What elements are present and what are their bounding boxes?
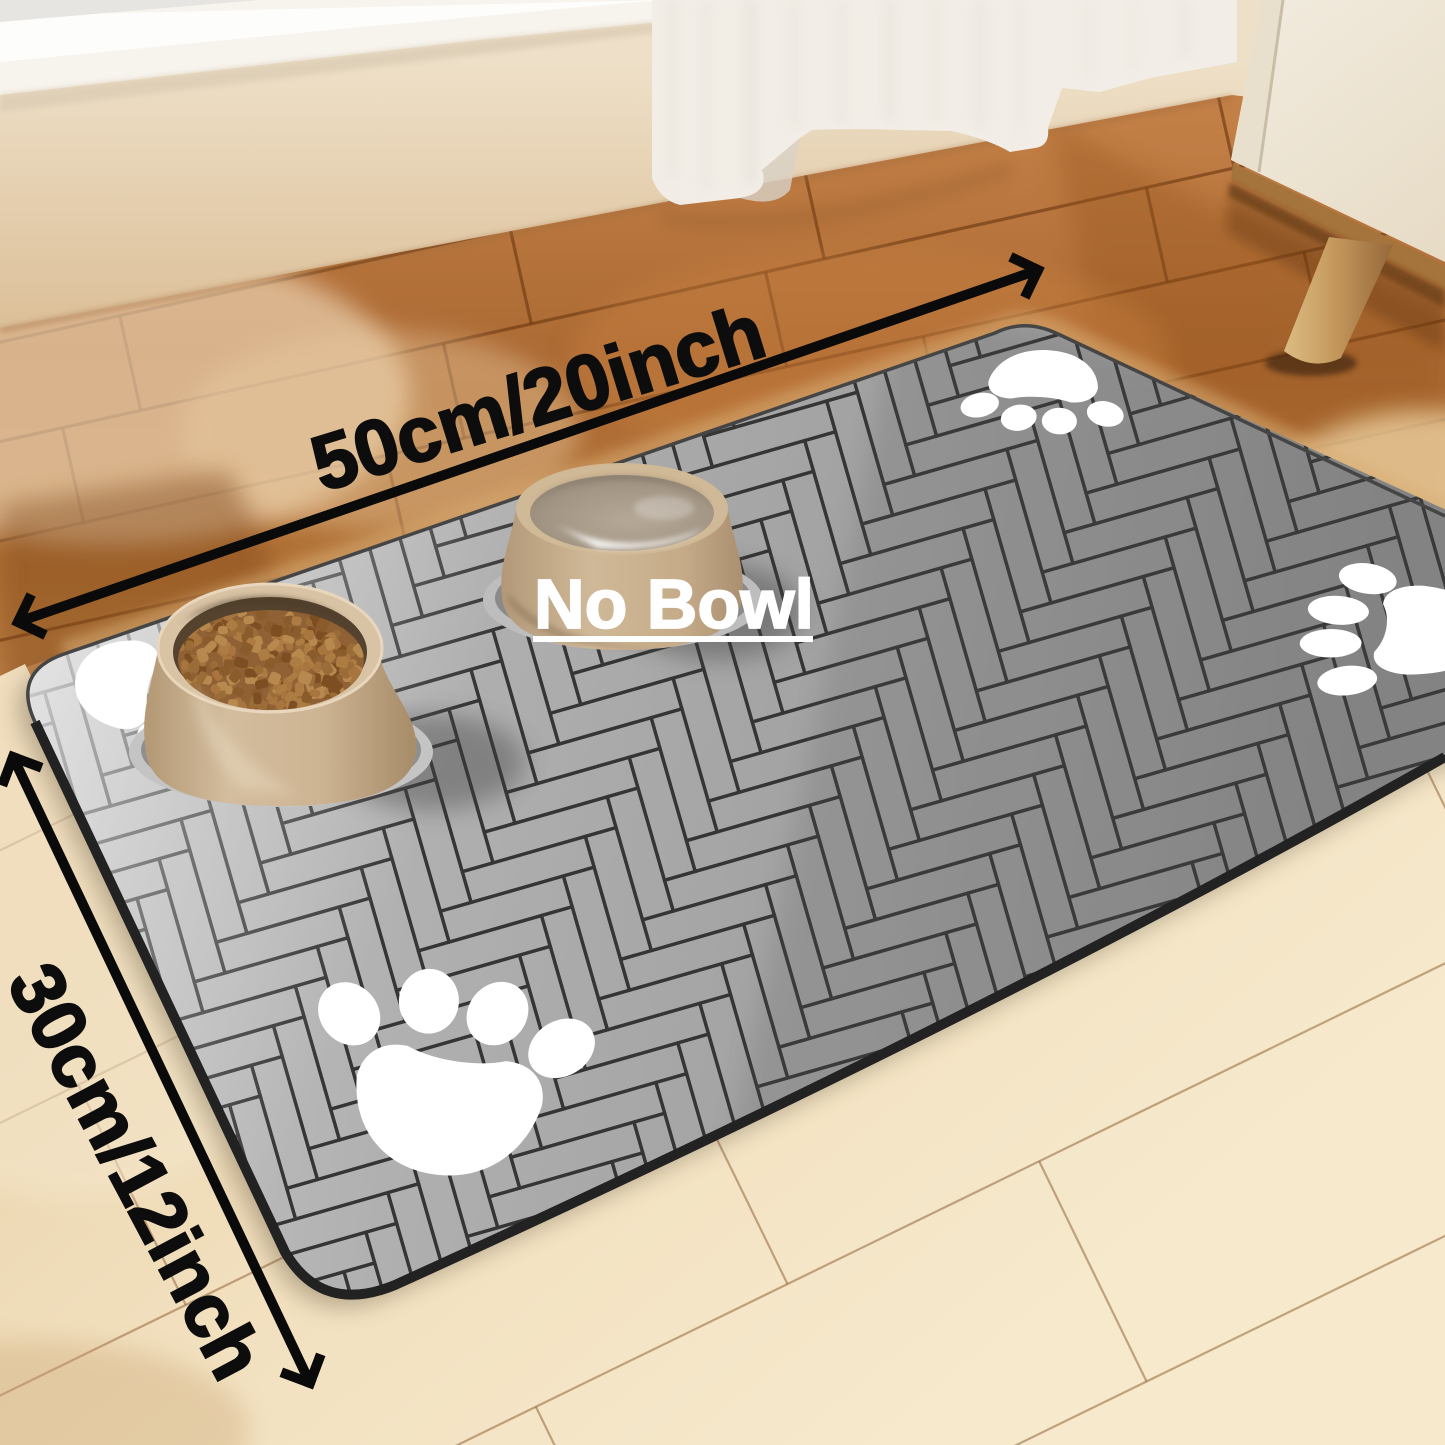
svg-text:No Bowl: No Bowl <box>534 565 814 643</box>
